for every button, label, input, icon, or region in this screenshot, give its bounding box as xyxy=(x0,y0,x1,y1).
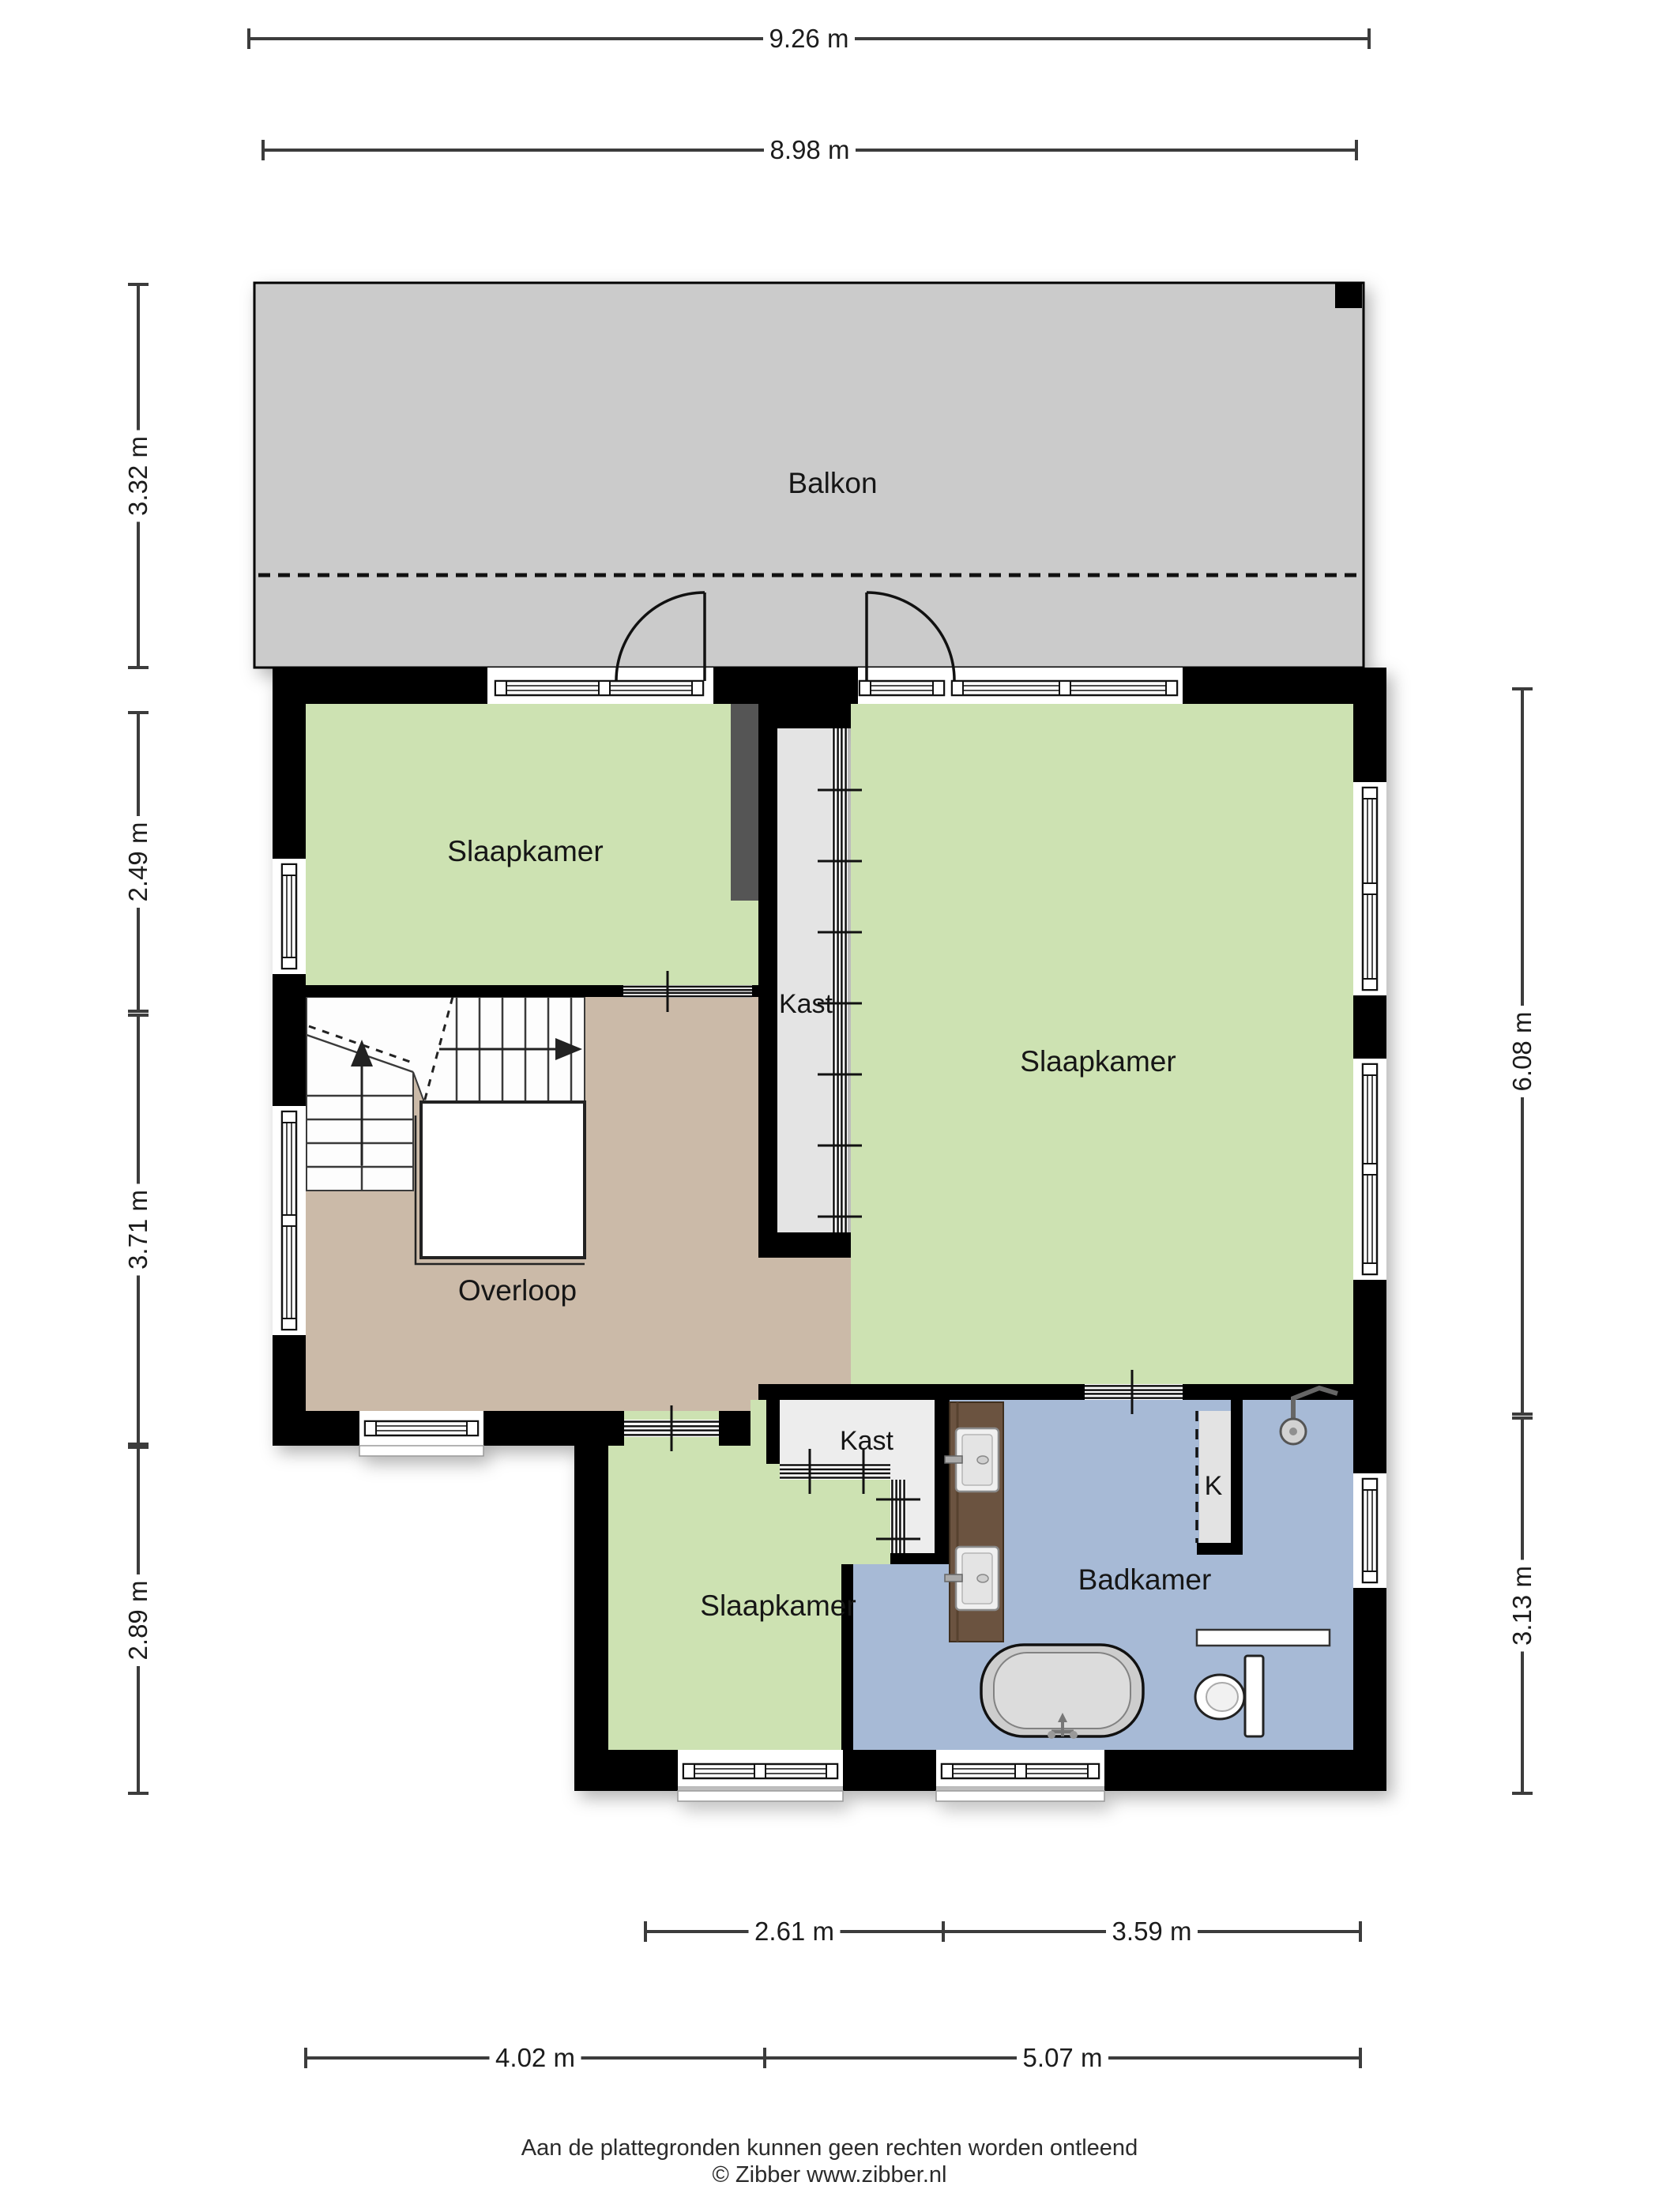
wall-segment xyxy=(843,1750,936,1791)
window-sill xyxy=(359,1446,483,1456)
wall-segment xyxy=(1353,1280,1386,1473)
window-glazing xyxy=(282,864,296,969)
window-glazing xyxy=(860,681,944,695)
wall-segment xyxy=(574,1750,678,1791)
bathtub-icon xyxy=(981,1645,1143,1739)
dimension-label: 5.07 m xyxy=(1023,2043,1103,2072)
room-label-slaapkamer-groot: Slaapkamer xyxy=(1020,1045,1176,1078)
stairwell-void xyxy=(421,1102,585,1258)
room-slaapkamer-groot-floor xyxy=(851,704,1353,1384)
floorplan-page: Balkon Slaapkamer Slaapkamer Kast Overlo… xyxy=(0,0,1659,2212)
dimension-label: 3.32 m xyxy=(123,436,152,516)
window-glazing xyxy=(1363,1479,1377,1582)
wall-segment xyxy=(752,985,758,997)
wall-segment xyxy=(713,668,858,704)
window-sill xyxy=(678,1791,843,1801)
dimension: 2.89 m xyxy=(121,1447,156,1793)
floorplan-svg: Balkon Slaapkamer Slaapkamer Kast Overlo… xyxy=(0,0,1659,2212)
room-slaapkamer-onder-floor3 xyxy=(844,1480,890,1564)
wall-segment xyxy=(1231,1400,1243,1555)
room-kast-midden-floor xyxy=(777,728,832,1232)
toilet-partition xyxy=(1197,1630,1330,1646)
wall-segment xyxy=(273,668,306,859)
wall-segment xyxy=(1104,1750,1386,1791)
room-label-balkon: Balkon xyxy=(788,467,877,499)
wall-segment xyxy=(1353,995,1386,1059)
room-label-kast-onder: Kast xyxy=(840,1426,894,1456)
wall-segment xyxy=(574,1411,608,1791)
balcony-corner-post xyxy=(1335,283,1362,308)
dimension-label: 2.49 m xyxy=(123,822,152,902)
room-label-slaapkamer-onder: Slaapkamer xyxy=(700,1589,856,1622)
wall-segment xyxy=(758,1232,851,1258)
dimension-label: 2.61 m xyxy=(754,1917,834,1946)
dimension: 2.61 m xyxy=(645,1914,943,1949)
dimension-label: 6.08 m xyxy=(1507,1012,1537,1092)
dimension-label: 2.89 m xyxy=(123,1581,152,1661)
room-label-kast-midden: Kast xyxy=(779,989,833,1019)
dimension-label: 3.59 m xyxy=(1112,1917,1192,1946)
overloop-nook-floor xyxy=(758,1258,851,1384)
dimension: 6.08 m xyxy=(1505,689,1540,1414)
dimension: 4.02 m xyxy=(306,2041,765,2075)
wall-segment xyxy=(1353,668,1386,782)
footer-copyright: © Zibber www.zibber.nl xyxy=(713,2162,947,2188)
dimension-label: 4.02 m xyxy=(495,2043,575,2072)
dimension: 3.59 m xyxy=(943,1914,1360,1949)
dimension: 3.71 m xyxy=(121,1015,156,1444)
dimension: 3.32 m xyxy=(121,284,156,668)
room-label-kast-k: K xyxy=(1205,1471,1223,1501)
wall-segment xyxy=(758,704,777,1258)
wall-segment xyxy=(306,985,623,997)
footer-disclaimer: Aan de plattegronden kunnen geen rechten… xyxy=(521,2135,1138,2161)
duct-block xyxy=(731,704,758,901)
window-glazing xyxy=(365,1421,478,1435)
wall-segment xyxy=(890,1553,935,1564)
dimension: 2.49 m xyxy=(121,713,156,1011)
wall-segment xyxy=(758,1384,1085,1400)
wall-segment xyxy=(273,974,306,1106)
wall-segment xyxy=(766,1400,780,1464)
wall-segment xyxy=(719,1411,750,1446)
window-sill xyxy=(936,1791,1104,1801)
wall-segment xyxy=(777,704,851,728)
footer: Aan de plattegronden kunnen geen rechten… xyxy=(521,2135,1138,2188)
room-label-slaapkamer-linksboven: Slaapkamer xyxy=(447,835,603,867)
dimension: 3.13 m xyxy=(1505,1418,1540,1793)
dimension-label: 3.13 m xyxy=(1507,1566,1537,1646)
room-label-badkamer: Badkamer xyxy=(1078,1563,1212,1596)
dimension: 8.98 m xyxy=(263,133,1356,167)
room-label-overloop: Overloop xyxy=(458,1274,577,1307)
dimension: 9.26 m xyxy=(249,21,1369,56)
dimension-label: 8.98 m xyxy=(770,135,850,164)
dimension-label: 3.71 m xyxy=(123,1190,152,1270)
wall-segment xyxy=(273,1411,359,1446)
dimension: 5.07 m xyxy=(765,2041,1360,2075)
wall-segment xyxy=(1197,1543,1243,1555)
vanity-counter xyxy=(945,1402,1003,1642)
wall-segment xyxy=(935,1400,950,1564)
dimension-label: 9.26 m xyxy=(769,24,849,53)
